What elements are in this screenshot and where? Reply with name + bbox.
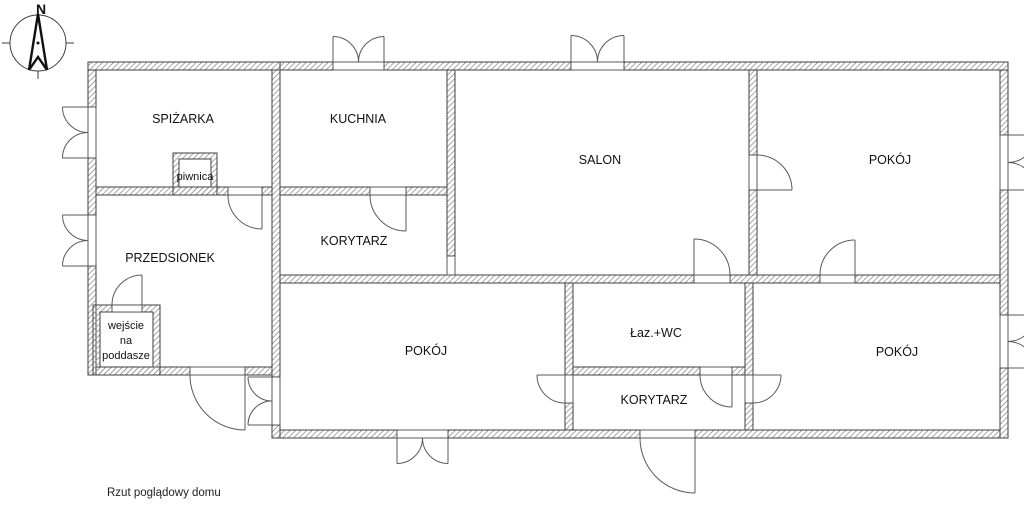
floor-plan-page: N SPIŻARKA KUCHNIA SALON POKÓJ PRZEDSION… (0, 0, 1024, 508)
door-korytarz-pokoj-poludniowy (753, 375, 781, 403)
room-label-lazienka: Łaz.+WC (630, 326, 682, 340)
window-pokoj-poludniowy (1008, 315, 1024, 368)
room-label-korytarz-gorny: KORYTARZ (321, 234, 388, 248)
window-przedsionek (63, 215, 89, 266)
door-entrance-porch (190, 375, 245, 430)
door-pokoj-pokoj (820, 240, 855, 275)
compass-north-label: N (36, 1, 46, 17)
room-label-pokoj-ne: POKÓJ (869, 152, 911, 167)
room-label-spizarka: SPIŻARKA (152, 112, 214, 126)
room-label-przedsionek: PRZEDSIONEK (125, 251, 215, 265)
door-and-window-frames (88, 62, 1008, 438)
window-salon (571, 36, 624, 63)
label-wejscie-line2: na (120, 335, 133, 347)
door-kuchnia-korytarz (370, 195, 406, 231)
door-salon-pokoj (757, 155, 792, 190)
label-wejscie-line3: poddasze (102, 350, 150, 362)
door-entrance-main (640, 438, 695, 493)
window-spizarka (63, 107, 89, 158)
room-label-salon: SALON (579, 153, 621, 167)
door-lazienka-korytarz (700, 375, 732, 407)
window-pokoj-srodkowy (397, 438, 448, 464)
label-piwnica: piwnica (177, 171, 215, 183)
floor-plan-drawing: N SPIŻARKA KUCHNIA SALON POKÓJ PRZEDSION… (0, 0, 1024, 508)
room-label-kuchnia: KUCHNIA (330, 112, 387, 126)
door-spizarka-przedsionek (228, 195, 262, 229)
room-label-pokoj-se: POKÓJ (876, 344, 918, 359)
label-wejscie-line1: wejście (107, 320, 144, 332)
room-label-korytarz-dolny: KORYTARZ (621, 393, 688, 407)
plan-caption: Rzut poglądowy domu (107, 487, 221, 499)
window-porch (248, 377, 272, 425)
room-label-pokoj-srodkowy: POKÓJ (405, 343, 447, 358)
window-pokoj-polnocny (1008, 135, 1024, 190)
door-salon-lazienka (694, 239, 730, 275)
exterior-and-interior-walls (88, 62, 1008, 438)
window-kuchnia (333, 37, 384, 63)
door-korytarz-pokoj-srodkowy (537, 375, 565, 403)
compass-rose: N (2, 1, 74, 79)
room-labels: SPIŻARKA KUCHNIA SALON POKÓJ PRZEDSIONEK… (102, 112, 918, 407)
